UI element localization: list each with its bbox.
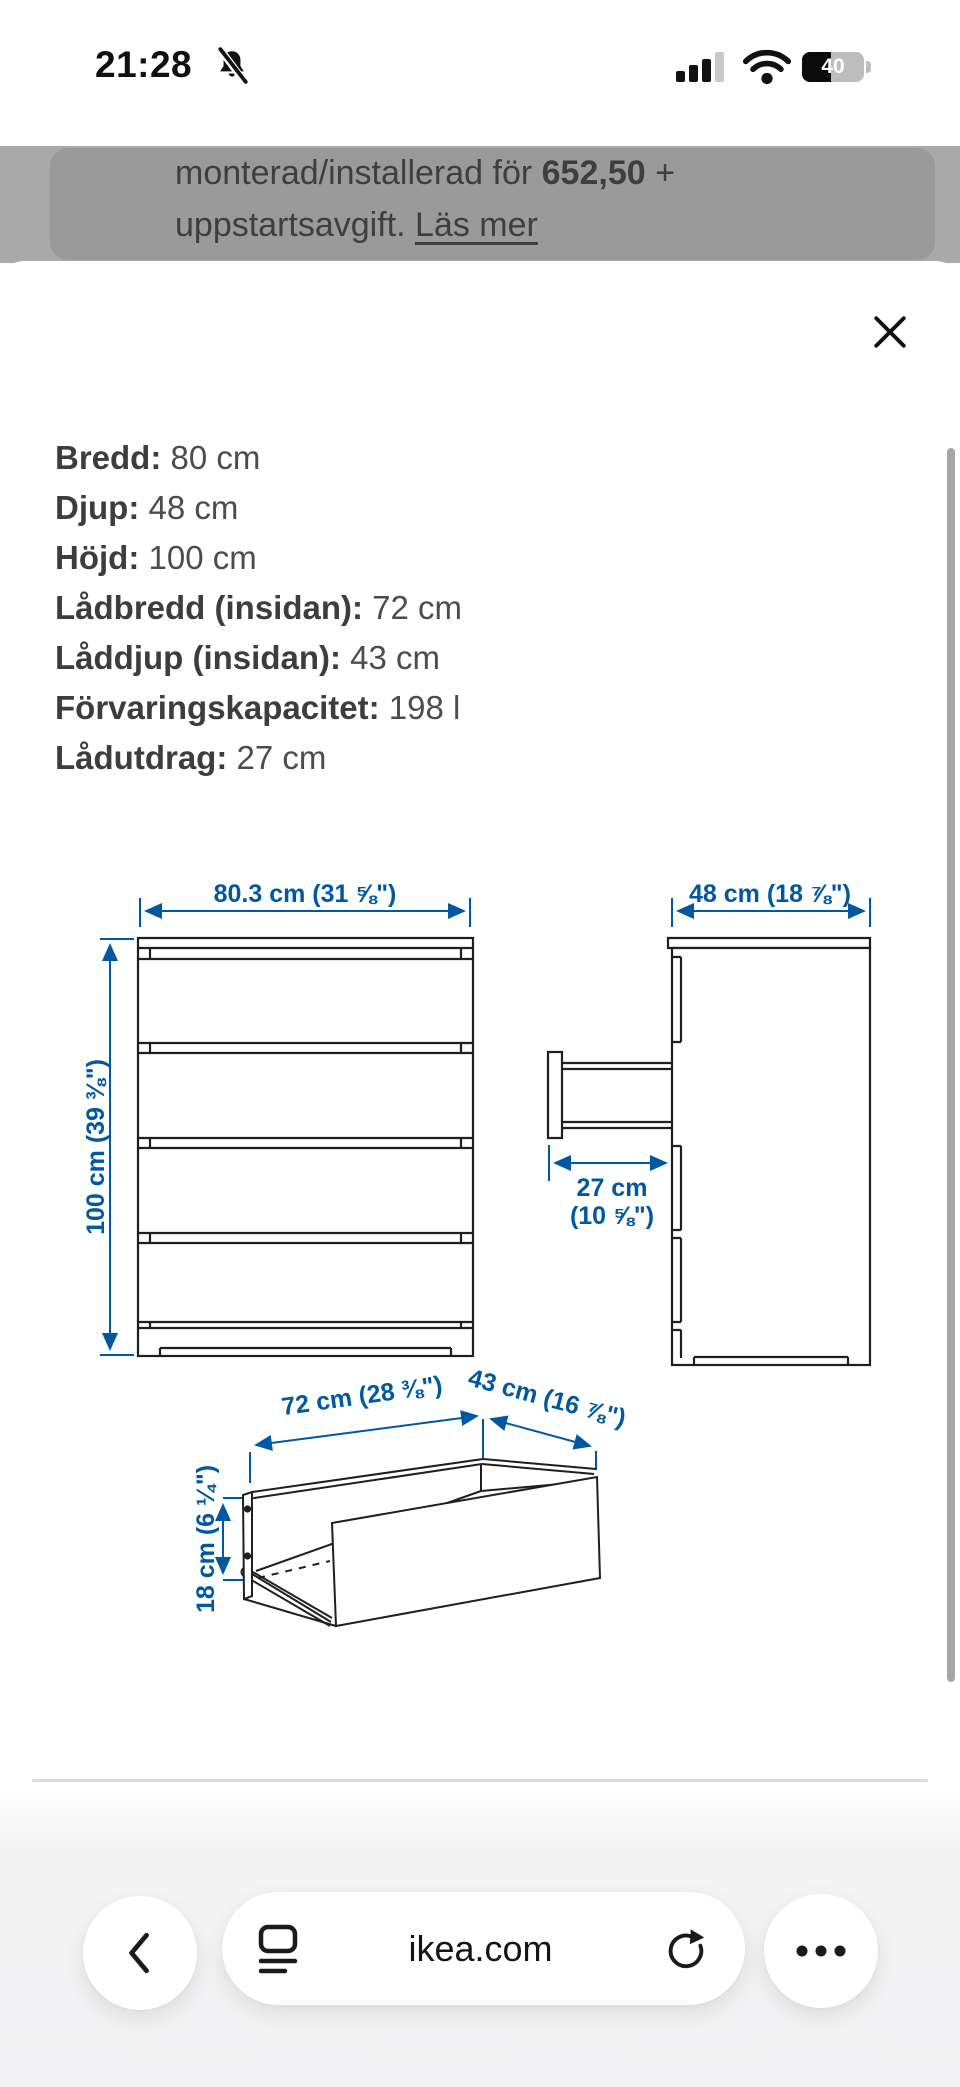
reader-view-icon[interactable] [258, 1924, 298, 1974]
measurement-value: 100 cm [148, 539, 256, 576]
startup-fee-line: uppstartsavgift. Läs mer [175, 206, 538, 245]
close-icon [872, 314, 908, 350]
battery-indicator: 40 [802, 52, 864, 82]
measurement-row: Bredd: 80 cm [55, 433, 462, 483]
measurement-row: Låddjup (insidan): 43 cm [55, 633, 462, 683]
assembly-text: monterad/installerad för [175, 154, 542, 192]
drawer-height-label: 18 cm (6 ¼") [192, 1465, 220, 1613]
measurement-row: Lådutdrag: 27 cm [55, 733, 462, 783]
dim-overlay[interactable]: monterad/installerad för 652,50 + uppsta… [0, 146, 960, 263]
measurement-label: Höjd: [55, 539, 139, 576]
status-bar: 21:28 40 [0, 0, 960, 146]
measurement-value: 48 cm [148, 489, 238, 526]
front-height-label: 100 cm (39 ⅜") [82, 1059, 110, 1235]
measurement-label: Lådbredd (insidan): [55, 589, 363, 626]
measurement-label: Bredd: [55, 439, 161, 476]
drawer-width-label: 72 cm (28 ⅜") [280, 1371, 444, 1421]
measurement-value: 198 l [389, 689, 461, 726]
drawer-extension-sub-label: (10 ⅝") [570, 1202, 654, 1230]
measurement-value: 27 cm [237, 739, 327, 776]
status-time: 21:28 [95, 44, 192, 86]
url-text[interactable]: ikea.com [298, 1928, 663, 1970]
assembly-price: 652,50 [542, 154, 646, 192]
wifi-icon [742, 49, 792, 85]
measurement-value: 43 cm [350, 639, 440, 676]
measurement-label: Förvaringskapacitet: [55, 689, 380, 726]
side-depth-label: 48 cm (18 ⅞") [689, 880, 851, 908]
measurement-row: Höjd: 100 cm [55, 533, 462, 583]
address-bar[interactable]: ikea.com [222, 1892, 745, 2005]
assembly-plus: + [646, 154, 675, 192]
drawer-extension-label: 27 cm [577, 1174, 648, 1202]
startup-fee-text: uppstartsavgift. [175, 206, 415, 244]
browser-toolbar: ikea.com [0, 1782, 960, 2087]
product-dimension-diagram: 80.3 cm (31 ⅝") 100 cm (39 ⅜") 48 cm (18… [0, 860, 960, 1660]
read-more-link: Läs mer [415, 206, 538, 244]
measurement-value: 80 cm [171, 439, 261, 476]
measurement-list: Bredd: 80 cm Djup: 48 cm Höjd: 100 cm Lå… [55, 433, 462, 783]
close-button[interactable] [856, 298, 924, 366]
battery-percent: 40 [802, 52, 864, 82]
measurement-label: Djup: [55, 489, 139, 526]
drawer-depth-label: 43 cm (16 ⅞") [465, 1364, 629, 1433]
notifications-muted-icon [213, 46, 251, 84]
measurement-label: Låddjup (insidan): [55, 639, 341, 676]
chevron-left-icon [125, 1930, 155, 1976]
more-menu-button[interactable] [764, 1894, 878, 2008]
ellipsis-icon [793, 1941, 849, 1961]
measurement-label: Lådutdrag: [55, 739, 227, 776]
reload-icon[interactable] [663, 1926, 709, 1972]
cellular-signal-icon [676, 52, 728, 82]
screen: 21:28 40 monterad/installerad för 652,50 [0, 0, 960, 2087]
measurement-value: 72 cm [372, 589, 462, 626]
measurement-row: Djup: 48 cm [55, 483, 462, 533]
scrollbar-thumb[interactable] [947, 448, 955, 1682]
measurement-row: Lådbredd (insidan): 72 cm [55, 583, 462, 633]
assembly-price-line: monterad/installerad för 652,50 + [175, 154, 675, 193]
measurement-row: Förvaringskapacitet: 198 l [55, 683, 462, 733]
front-width-label: 80.3 cm (31 ⅝") [214, 880, 397, 908]
back-button[interactable] [83, 1896, 197, 2010]
background-info-panel: monterad/installerad för 652,50 + uppsta… [50, 148, 935, 260]
